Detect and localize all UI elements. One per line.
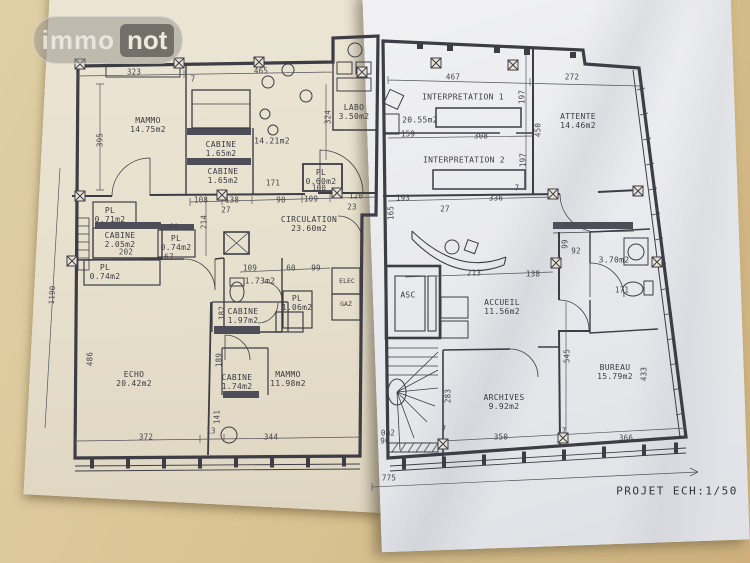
room-area: 15.79m2 bbox=[597, 372, 633, 381]
dim-label: 395 bbox=[96, 133, 105, 147]
room-name: ASC bbox=[400, 291, 415, 300]
dim-label: 344 bbox=[264, 433, 278, 442]
room-label-interpretation-2: INTERPRETATION 2 bbox=[423, 156, 505, 165]
room-name: ATTENTE bbox=[560, 112, 596, 121]
dim-label: 171 bbox=[266, 179, 280, 188]
room-area: 14.75m2 bbox=[130, 125, 166, 134]
room-name: CABINE bbox=[206, 140, 237, 149]
dim-label: 109 bbox=[243, 264, 257, 273]
room-area: 1.65m2 bbox=[206, 149, 237, 158]
room-name: ACCUEIL bbox=[484, 298, 520, 307]
room-label-cabine-1: CABINE1.65m2 bbox=[206, 140, 237, 158]
dim-label: 324 bbox=[324, 110, 333, 124]
room-area: 1.65m2 bbox=[208, 176, 239, 185]
room-label-office-1421: 14.21m2 bbox=[254, 137, 290, 146]
dim-label: 7 bbox=[515, 184, 520, 193]
dim-label: 138 bbox=[526, 270, 540, 279]
plan-text-labels: MAMMO14.75m2 CABINE1.65m2 14.21m2 CABINE… bbox=[0, 0, 750, 563]
room-name: PL bbox=[90, 263, 121, 272]
dim-label: 197 bbox=[518, 90, 527, 104]
dim-label: 486 bbox=[86, 352, 95, 366]
room-area-interpretation-1: 20.55m2 bbox=[402, 116, 438, 125]
room-label-mammo-top: MAMMO14.75m2 bbox=[130, 116, 166, 134]
dim-label: 450 bbox=[534, 123, 543, 137]
dim-label: 23 bbox=[347, 203, 356, 212]
room-area: 1.74m2 bbox=[222, 382, 253, 391]
utility-label-gaz: GAZ bbox=[340, 300, 352, 308]
room-name: CABINE bbox=[228, 307, 259, 316]
room-area: 14.46m2 bbox=[560, 121, 596, 130]
room-label-archives: ARCHIVES9.92m2 bbox=[484, 393, 525, 411]
dim-label: 372 bbox=[139, 433, 153, 442]
watermark-text-immo: immo bbox=[42, 25, 115, 56]
room-label-echo: ECHO20.42m2 bbox=[116, 370, 152, 388]
room-area: 14.21m2 bbox=[254, 137, 290, 146]
room-name: MAMMO bbox=[130, 116, 166, 125]
dim-label: 90 bbox=[276, 196, 285, 205]
dim-label: 182 bbox=[218, 306, 227, 320]
dim-label: 99 bbox=[561, 239, 570, 248]
dim-label: 7 bbox=[562, 427, 567, 436]
room-label-pl-074b: PL0.74m2 bbox=[90, 263, 121, 281]
dim-label: 7 bbox=[191, 75, 196, 84]
dim-label: 90 bbox=[380, 437, 389, 446]
dim-label: 27 bbox=[440, 205, 449, 214]
dim-label: 202 bbox=[119, 248, 133, 257]
dim-label: 108 bbox=[194, 196, 208, 205]
dim-label: 283 bbox=[444, 389, 453, 403]
room-name: PL bbox=[282, 294, 313, 303]
dim-label: 27 bbox=[221, 206, 230, 215]
dim-label: 60 bbox=[286, 264, 295, 273]
dim-label: 545 bbox=[563, 349, 572, 363]
dim-label: 1190 bbox=[47, 285, 57, 304]
dim-label: 159 bbox=[401, 130, 415, 139]
watermark-text-not: not bbox=[120, 24, 174, 57]
room-area: 0.74m2 bbox=[161, 243, 192, 252]
room-name: CIRCULATION bbox=[281, 215, 337, 224]
dim-label: 109 bbox=[304, 195, 318, 204]
room-area: 1.97m2 bbox=[228, 316, 259, 325]
dim-label: 120 bbox=[349, 192, 363, 201]
utility-label-elec: ELEC bbox=[339, 277, 355, 285]
room-area: 0.74m2 bbox=[90, 272, 121, 281]
room-label-cabine-174: CABINE1.74m2 bbox=[222, 373, 253, 391]
dim-label: 272 bbox=[565, 73, 579, 82]
room-name: PL bbox=[306, 168, 337, 177]
room-area: 1.06m2 bbox=[282, 303, 313, 312]
room-name: ARCHIVES bbox=[484, 393, 525, 402]
room-name: ECHO bbox=[116, 370, 152, 379]
room-area: 3.70m2 bbox=[599, 256, 630, 265]
room-label-attente: ATTENTE14.46m2 bbox=[560, 112, 596, 130]
room-label-wc-173: 1.73m2 bbox=[245, 277, 276, 286]
room-label-cabine-2: CABINE1.65m2 bbox=[208, 167, 239, 185]
dim-label: 92 bbox=[571, 247, 580, 256]
dim-label: 99 bbox=[311, 264, 320, 273]
room-label-interpretation-1: INTERPRETATION 1 bbox=[422, 93, 504, 102]
dim-label: 775 bbox=[382, 474, 396, 483]
dim-label: 213 bbox=[467, 269, 481, 278]
dim-label: 60 bbox=[169, 223, 178, 232]
dim-label: 465 bbox=[254, 67, 268, 76]
room-name: BUREAU bbox=[597, 363, 633, 372]
dim-label: 141 bbox=[213, 410, 222, 424]
room-name: CABINE bbox=[105, 231, 136, 240]
dim-label: 323 bbox=[127, 68, 141, 77]
room-label-mammo-bottom: MAMMO11.98m2 bbox=[270, 370, 306, 388]
partial-area-label: 0m2 bbox=[381, 429, 395, 438]
dim-label: 433 bbox=[640, 367, 649, 381]
dim-label: 189 bbox=[215, 353, 224, 367]
room-name: LABO bbox=[339, 103, 370, 112]
room-label-pl-106: PL1.06m2 bbox=[282, 294, 313, 312]
room-name: INTERPRETATION 2 bbox=[423, 156, 505, 165]
dim-label: 165 bbox=[387, 206, 396, 220]
room-area: 3.50m2 bbox=[339, 112, 370, 121]
room-label-accueil: ACCUEIL11.56m2 bbox=[484, 298, 520, 316]
room-area: 11.56m2 bbox=[484, 307, 520, 316]
dim-label: 171 bbox=[615, 286, 629, 295]
room-area: 1.73m2 bbox=[245, 277, 276, 286]
dim-label: 467 bbox=[446, 73, 460, 82]
room-name: INTERPRETATION 1 bbox=[422, 93, 504, 102]
dim-label: 100 bbox=[312, 184, 326, 193]
dim-label: 67 bbox=[164, 253, 173, 262]
room-label-circulation: CIRCULATION23.60m2 bbox=[281, 215, 337, 233]
scale-note: PROJET ECH:1/50 bbox=[616, 485, 738, 498]
room-area: 0.71m2 bbox=[95, 215, 126, 224]
dim-label: 308 bbox=[474, 132, 488, 141]
room-name: MAMMO bbox=[270, 370, 306, 379]
room-name: PL bbox=[161, 234, 192, 243]
room-label-cabine-197: CABINE1.97m2 bbox=[228, 307, 259, 325]
room-area: 20.42m2 bbox=[116, 379, 152, 388]
room-area: 11.98m2 bbox=[270, 379, 306, 388]
dim-label: 138 bbox=[225, 196, 239, 205]
room-label-cabine-205: CABINE2.05m2 bbox=[105, 231, 136, 249]
room-label-bureau: BUREAU15.79m2 bbox=[597, 363, 633, 381]
room-label-asc: ASC bbox=[400, 291, 415, 300]
dim-label: 366 bbox=[619, 434, 633, 443]
room-name: PL bbox=[95, 206, 126, 215]
room-area: 20.55m2 bbox=[402, 116, 438, 125]
dim-label: 7 bbox=[442, 425, 447, 434]
dim-label: 350 bbox=[494, 433, 508, 442]
room-name: CABINE bbox=[222, 373, 253, 382]
room-name: CABINE bbox=[208, 167, 239, 176]
room-label-pl-074a: PL0.74m2 bbox=[161, 234, 192, 252]
room-label-pl-071: PL0.71m2 bbox=[95, 206, 126, 224]
dim-label: 193 bbox=[396, 194, 410, 203]
photo-of-floorplan-sheets: MAMMO14.75m2 CABINE1.65m2 14.21m2 CABINE… bbox=[0, 0, 750, 563]
immonot-watermark: immo not bbox=[33, 16, 183, 64]
dim-label: 197 bbox=[519, 153, 528, 167]
room-label-labo: LABO3.50m2 bbox=[339, 103, 370, 121]
room-label-wc-370: 3.70m2 bbox=[599, 256, 630, 265]
room-area: 23.60m2 bbox=[281, 224, 337, 233]
room-area: 9.92m2 bbox=[484, 402, 525, 411]
dim-label: 336 bbox=[489, 194, 503, 203]
dim-label: 214 bbox=[200, 215, 209, 229]
dim-label: 13 bbox=[206, 427, 215, 436]
